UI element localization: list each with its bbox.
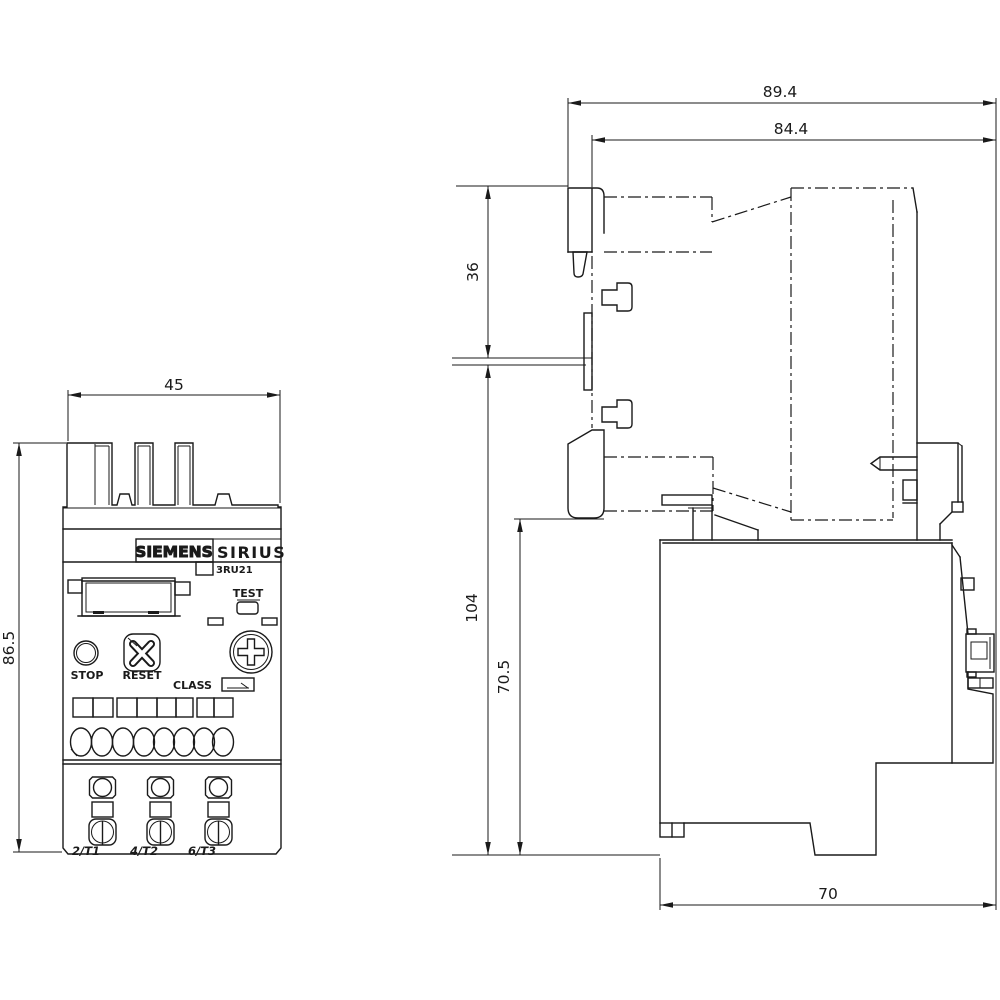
setting-window [68, 578, 190, 616]
brand-plate: SIEMENS SIRIUS 3RU21 [63, 529, 286, 576]
dim-side-main-height-value: 104 [463, 593, 481, 623]
dimensional-drawing: 45 86.5 [0, 0, 1000, 1000]
scale-squares [73, 698, 233, 717]
front-view: 45 86.5 [0, 376, 286, 858]
reset-button: RESET [123, 634, 162, 682]
dim-side-top-height: 36 [452, 186, 592, 358]
model-label: 3RU21 [216, 565, 253, 576]
side-knob [966, 629, 994, 688]
test-label: TEST [233, 587, 264, 600]
contactor-phantom-outline [592, 188, 913, 520]
dim-side-base-depth-value: 70 [818, 885, 838, 903]
rear-mount-bracket [568, 188, 632, 518]
terminal-label-2: 4/T2 [129, 844, 158, 858]
test-button: TEST [208, 587, 277, 625]
stop-button: STOP [71, 641, 104, 682]
dim-side-mount-depth: 84.4 [592, 120, 996, 187]
dim-side-total-depth-value: 89.4 [763, 83, 798, 101]
brand-logo: SIEMENS [135, 543, 213, 561]
terminal-group-1: 2/T1 [72, 777, 116, 858]
dim-side-top-height-value: 36 [464, 262, 482, 282]
class-label: CLASS [173, 679, 212, 692]
terminal-label-1: 2/T1 [72, 844, 100, 858]
dim-side-body-height: 70.5 [495, 519, 604, 855]
reset-label: RESET [123, 669, 162, 682]
class-window: CLASS [173, 678, 254, 692]
dim-side-body-height-value: 70.5 [495, 660, 513, 695]
dim-side-main-height: 104 [452, 365, 660, 855]
adjustment-dial [230, 631, 272, 673]
series-label: SIRIUS [217, 543, 286, 562]
dim-side-total-depth: 89.4 [568, 83, 996, 910]
dim-front-height-value: 86.5 [0, 631, 18, 666]
side-view: 89.4 84.4 36 104 [452, 83, 996, 910]
dim-front-width-value: 45 [164, 376, 184, 394]
terminal-group-2: 4/T2 [129, 777, 174, 858]
scale-ovals [63, 728, 281, 764]
dim-front-height: 86.5 [0, 443, 66, 852]
terminal-label-3: 6/T3 [188, 844, 216, 858]
terminal-group-3: 6/T3 [188, 777, 232, 858]
stop-label: STOP [71, 669, 104, 682]
dim-side-mount-depth-value: 84.4 [774, 120, 809, 138]
relay-body-profile [660, 188, 993, 855]
dim-side-base-depth: 70 [660, 858, 996, 910]
dim-front-width: 45 [68, 376, 280, 503]
